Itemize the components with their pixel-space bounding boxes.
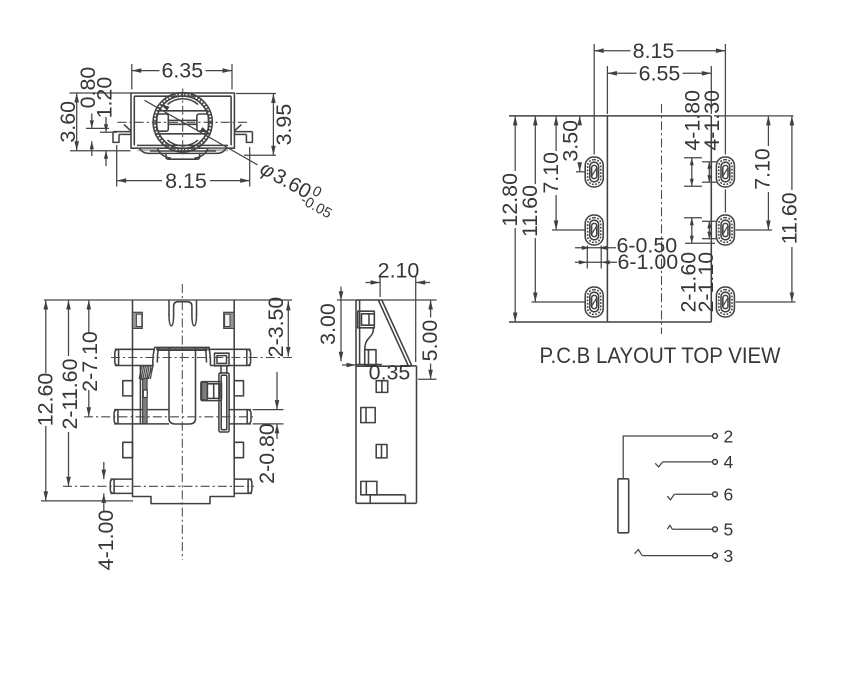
svg-text:6: 6 bbox=[724, 485, 734, 505]
svg-text:2-1.10: 2-1.10 bbox=[694, 252, 718, 313]
svg-text:2: 2 bbox=[724, 426, 734, 446]
svg-text:3.95: 3.95 bbox=[272, 104, 296, 146]
svg-text:8.15: 8.15 bbox=[633, 39, 675, 63]
svg-text:2-3.50: 2-3.50 bbox=[264, 297, 288, 358]
svg-text:4-1.30: 4-1.30 bbox=[700, 90, 724, 151]
svg-text:4-1.00: 4-1.00 bbox=[94, 510, 118, 571]
svg-text:3.50: 3.50 bbox=[559, 120, 583, 162]
svg-text:3: 3 bbox=[724, 546, 734, 566]
svg-text:6-1.00: 6-1.00 bbox=[618, 250, 679, 274]
svg-text:1.20: 1.20 bbox=[92, 77, 116, 119]
svg-text:2.10: 2.10 bbox=[378, 259, 420, 283]
svg-text:6.55: 6.55 bbox=[639, 62, 681, 86]
svg-text:0.35: 0.35 bbox=[369, 361, 411, 385]
svg-text:8.15: 8.15 bbox=[165, 169, 207, 193]
svg-text:11.60: 11.60 bbox=[778, 192, 802, 244]
svg-text:6.35: 6.35 bbox=[161, 59, 203, 83]
svg-text:2-0.80: 2-0.80 bbox=[255, 423, 279, 484]
svg-text:5: 5 bbox=[724, 520, 734, 540]
svg-text:P.C.B LAYOUT TOP VIEW: P.C.B LAYOUT TOP VIEW bbox=[540, 343, 781, 368]
svg-text:4: 4 bbox=[724, 452, 734, 472]
svg-text:7.10: 7.10 bbox=[751, 148, 775, 190]
svg-text:3.00: 3.00 bbox=[316, 303, 340, 345]
svg-text:5.00: 5.00 bbox=[418, 320, 442, 362]
svg-text:2-7.10: 2-7.10 bbox=[78, 331, 102, 392]
svg-text:12.60: 12.60 bbox=[34, 373, 58, 427]
